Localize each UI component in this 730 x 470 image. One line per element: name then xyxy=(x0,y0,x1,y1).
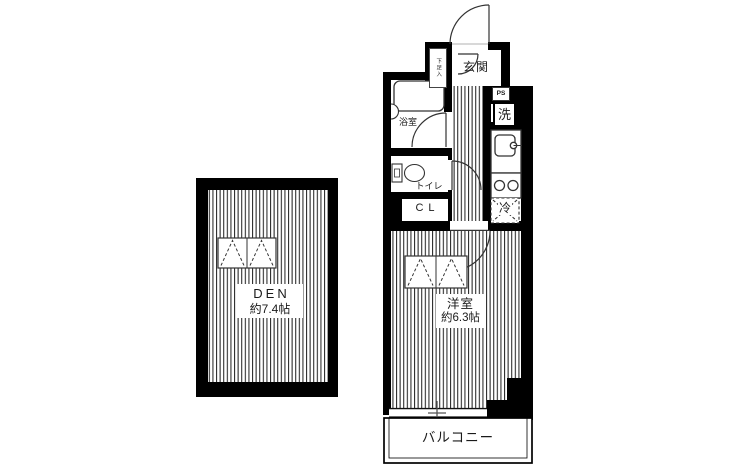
hallway-floor-hatch xyxy=(452,86,483,221)
entry-door-arc xyxy=(450,5,489,44)
bathroom-label: 浴室 xyxy=(392,117,424,128)
burner-right xyxy=(508,181,518,191)
den-closet xyxy=(218,238,276,268)
toilet-fixture xyxy=(392,164,425,182)
washing-machine-label: 洗 xyxy=(493,102,516,127)
den-area: 約7.4帖 xyxy=(250,302,291,316)
entrance-label: 玄関 xyxy=(452,60,500,74)
western-room-name: 洋室 xyxy=(447,297,474,312)
refrigerator-label: 冷 xyxy=(491,201,519,215)
den-label: DEN 約7.4帖 xyxy=(237,284,303,318)
stove-burners xyxy=(491,173,521,198)
kitchen-sink-unit xyxy=(491,130,522,173)
den-name: DEN xyxy=(250,286,289,302)
refrigerator-label-text: 冷 xyxy=(498,201,512,215)
balcony-label: バルコニー xyxy=(384,430,532,446)
toilet-label: トイレ xyxy=(408,181,450,192)
western-room-label: 洋室 約6.3帖 xyxy=(436,294,485,328)
floorplan-drawing xyxy=(0,0,730,470)
closet-label: CL xyxy=(402,202,448,215)
burner-left xyxy=(495,181,505,191)
floorplan-canvas: 玄関 下足入 PS 洗 浴室 トイレ CL 冷 洋室 約6.3帖 DEN 約7.… xyxy=(0,0,730,470)
shoe-cupboard-label: 下足入 xyxy=(429,48,447,88)
pipe-space-label: PS xyxy=(492,87,510,101)
western-room-area: 約6.3帖 xyxy=(441,312,480,326)
western-room-closet xyxy=(405,256,467,288)
